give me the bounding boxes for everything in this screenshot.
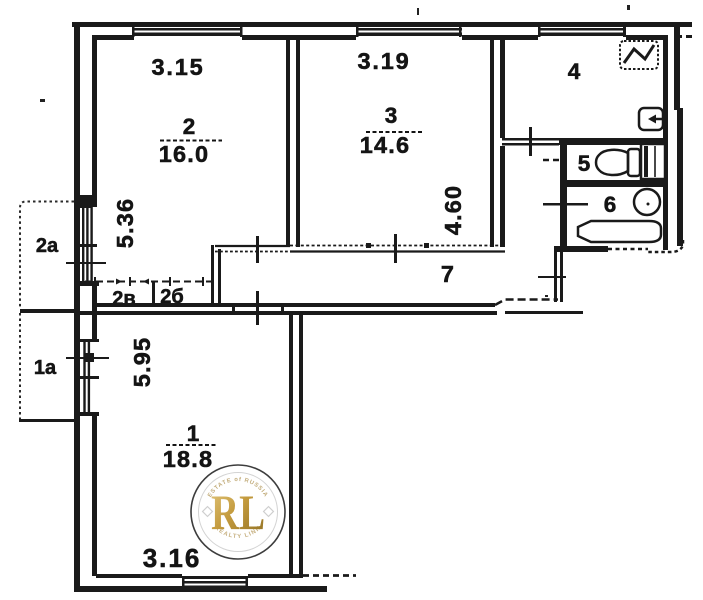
svg-text:5: 5 <box>578 151 591 176</box>
svg-text:RL: RL <box>211 484 265 540</box>
svg-text:4: 4 <box>568 59 581 84</box>
svg-text:3.15: 3.15 <box>152 54 205 80</box>
svg-text:3.19: 3.19 <box>358 48 411 74</box>
svg-text:4.60: 4.60 <box>440 185 466 236</box>
svg-text:3.16: 3.16 <box>143 543 202 573</box>
svg-text:1: 1 <box>187 421 200 446</box>
svg-text:3: 3 <box>385 103 398 128</box>
svg-text:2а: 2а <box>36 235 59 257</box>
svg-text:16.0: 16.0 <box>159 141 210 167</box>
svg-text:6: 6 <box>604 192 617 217</box>
svg-text:1а: 1а <box>34 357 57 379</box>
svg-text:7: 7 <box>441 261 455 287</box>
svg-text:2: 2 <box>183 114 196 139</box>
svg-text:18.8: 18.8 <box>163 446 214 472</box>
svg-text:5.95: 5.95 <box>129 337 155 388</box>
svg-text:5.36: 5.36 <box>112 198 138 249</box>
svg-text:14.6: 14.6 <box>360 132 411 158</box>
